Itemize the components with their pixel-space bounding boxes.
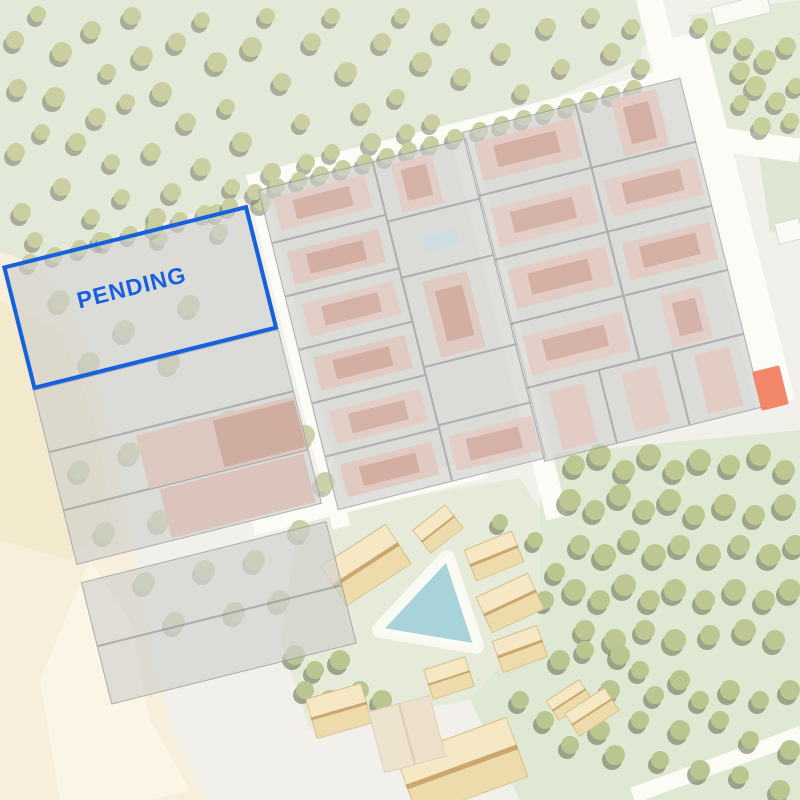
tree: [324, 8, 340, 24]
tree: [724, 579, 746, 601]
tree: [152, 82, 172, 102]
tree: [294, 114, 310, 130]
tree: [644, 544, 666, 566]
tree: [492, 514, 508, 530]
tree: [45, 87, 65, 107]
tree: [731, 766, 749, 784]
tree: [389, 89, 405, 105]
tree: [88, 108, 106, 126]
tree: [756, 50, 776, 70]
tree: [34, 124, 50, 140]
tree: [453, 68, 471, 86]
tree: [749, 444, 771, 466]
tree: [609, 484, 631, 506]
tree: [711, 711, 729, 729]
tree: [259, 8, 275, 24]
tree: [399, 124, 415, 140]
tree: [330, 650, 350, 670]
tree: [104, 154, 120, 170]
tree: [547, 563, 565, 581]
tree: [631, 711, 649, 729]
tree: [52, 42, 72, 62]
tree: [575, 620, 595, 640]
tree: [785, 535, 800, 555]
car: [421, 228, 460, 252]
tree: [670, 720, 690, 740]
tree: [114, 189, 130, 205]
tree: [527, 532, 543, 548]
tree: [224, 179, 240, 195]
tree: [741, 731, 759, 749]
tree: [536, 711, 554, 729]
tree: [100, 64, 116, 80]
tree: [337, 62, 357, 82]
tree: [779, 579, 800, 601]
tree: [219, 99, 235, 115]
tree: [691, 691, 709, 709]
tree: [538, 18, 556, 36]
map-canvas[interactable]: PENDING: [0, 0, 800, 800]
tree: [424, 114, 440, 130]
tree: [232, 132, 252, 152]
tree: [768, 92, 786, 110]
tree: [736, 38, 754, 56]
tree: [433, 23, 451, 41]
tree: [746, 76, 766, 96]
white-building: [774, 217, 800, 245]
tree: [242, 37, 262, 57]
tree: [13, 203, 31, 221]
house: [548, 383, 597, 450]
tree: [84, 209, 100, 225]
tree: [699, 544, 721, 566]
tree: [163, 183, 181, 201]
tree: [734, 619, 756, 641]
tree: [635, 500, 655, 520]
tree: [713, 31, 731, 49]
tree: [53, 178, 71, 196]
tree: [664, 629, 686, 651]
tree: [373, 33, 391, 51]
tree: [685, 505, 705, 525]
tree: [193, 158, 211, 176]
tree: [68, 133, 86, 151]
tree: [564, 579, 586, 601]
tree: [194, 12, 210, 28]
tree: [733, 95, 749, 111]
tree: [775, 460, 795, 480]
tree: [695, 590, 715, 610]
tree: [780, 680, 800, 700]
tree: [123, 7, 141, 25]
tree: [720, 680, 740, 700]
tree: [665, 460, 685, 480]
house: [621, 365, 670, 432]
house: [694, 347, 743, 414]
tree: [30, 6, 46, 22]
tree: [83, 21, 101, 39]
tree: [514, 84, 530, 100]
tree: [640, 590, 660, 610]
tree: [585, 500, 605, 520]
tree: [788, 78, 800, 94]
tree: [143, 143, 161, 161]
tree: [554, 59, 570, 75]
tree: [765, 630, 785, 650]
tree: [7, 143, 25, 161]
tree: [646, 686, 664, 704]
tree: [168, 33, 186, 51]
tree: [751, 691, 769, 709]
tree: [133, 46, 153, 66]
tree: [493, 43, 511, 61]
tree: [299, 154, 315, 170]
tree: [692, 18, 708, 34]
tree: [550, 650, 570, 670]
tree: [670, 535, 690, 555]
tree: [670, 670, 690, 690]
tree: [778, 37, 796, 55]
tree: [306, 661, 324, 679]
tree: [664, 579, 686, 601]
tree: [759, 544, 781, 566]
tree: [511, 691, 529, 709]
tree: [353, 103, 371, 121]
tree: [594, 544, 616, 566]
tree: [474, 8, 490, 24]
tree: [207, 52, 227, 72]
pending-label: PENDING: [74, 261, 189, 314]
tree: [603, 43, 621, 61]
tree: [745, 505, 765, 525]
tree: [631, 661, 649, 679]
tree: [605, 745, 625, 765]
tree: [753, 117, 771, 135]
tree: [690, 760, 710, 780]
tree: [714, 494, 736, 516]
tree: [624, 19, 640, 35]
tree: [651, 751, 669, 769]
tree: [576, 641, 594, 659]
tree: [412, 52, 432, 72]
tree: [634, 59, 650, 75]
tree: [303, 33, 321, 51]
tree: [732, 62, 750, 80]
tree: [363, 133, 381, 151]
tree: [639, 444, 661, 466]
tree: [324, 144, 340, 160]
tree: [178, 113, 196, 131]
tree: [635, 620, 655, 640]
tree: [620, 530, 640, 550]
tree: [689, 449, 711, 471]
tree: [730, 535, 750, 555]
tree: [783, 113, 799, 129]
tree: [610, 645, 630, 665]
tree: [9, 79, 27, 97]
tree: [590, 590, 610, 610]
tree: [700, 625, 720, 645]
tree: [584, 8, 600, 24]
tree: [559, 489, 581, 511]
tree: [780, 740, 800, 760]
tree: [119, 94, 135, 110]
tree: [755, 590, 775, 610]
tree: [774, 494, 796, 516]
tree: [273, 73, 291, 91]
tree: [770, 780, 790, 800]
tree: [6, 31, 24, 49]
tree: [565, 455, 585, 475]
tree: [614, 574, 636, 596]
tree: [570, 535, 590, 555]
tree: [27, 232, 43, 248]
tree: [394, 8, 410, 24]
tree: [561, 736, 579, 754]
tree: [659, 489, 681, 511]
tree: [720, 455, 740, 475]
tree: [615, 460, 635, 480]
